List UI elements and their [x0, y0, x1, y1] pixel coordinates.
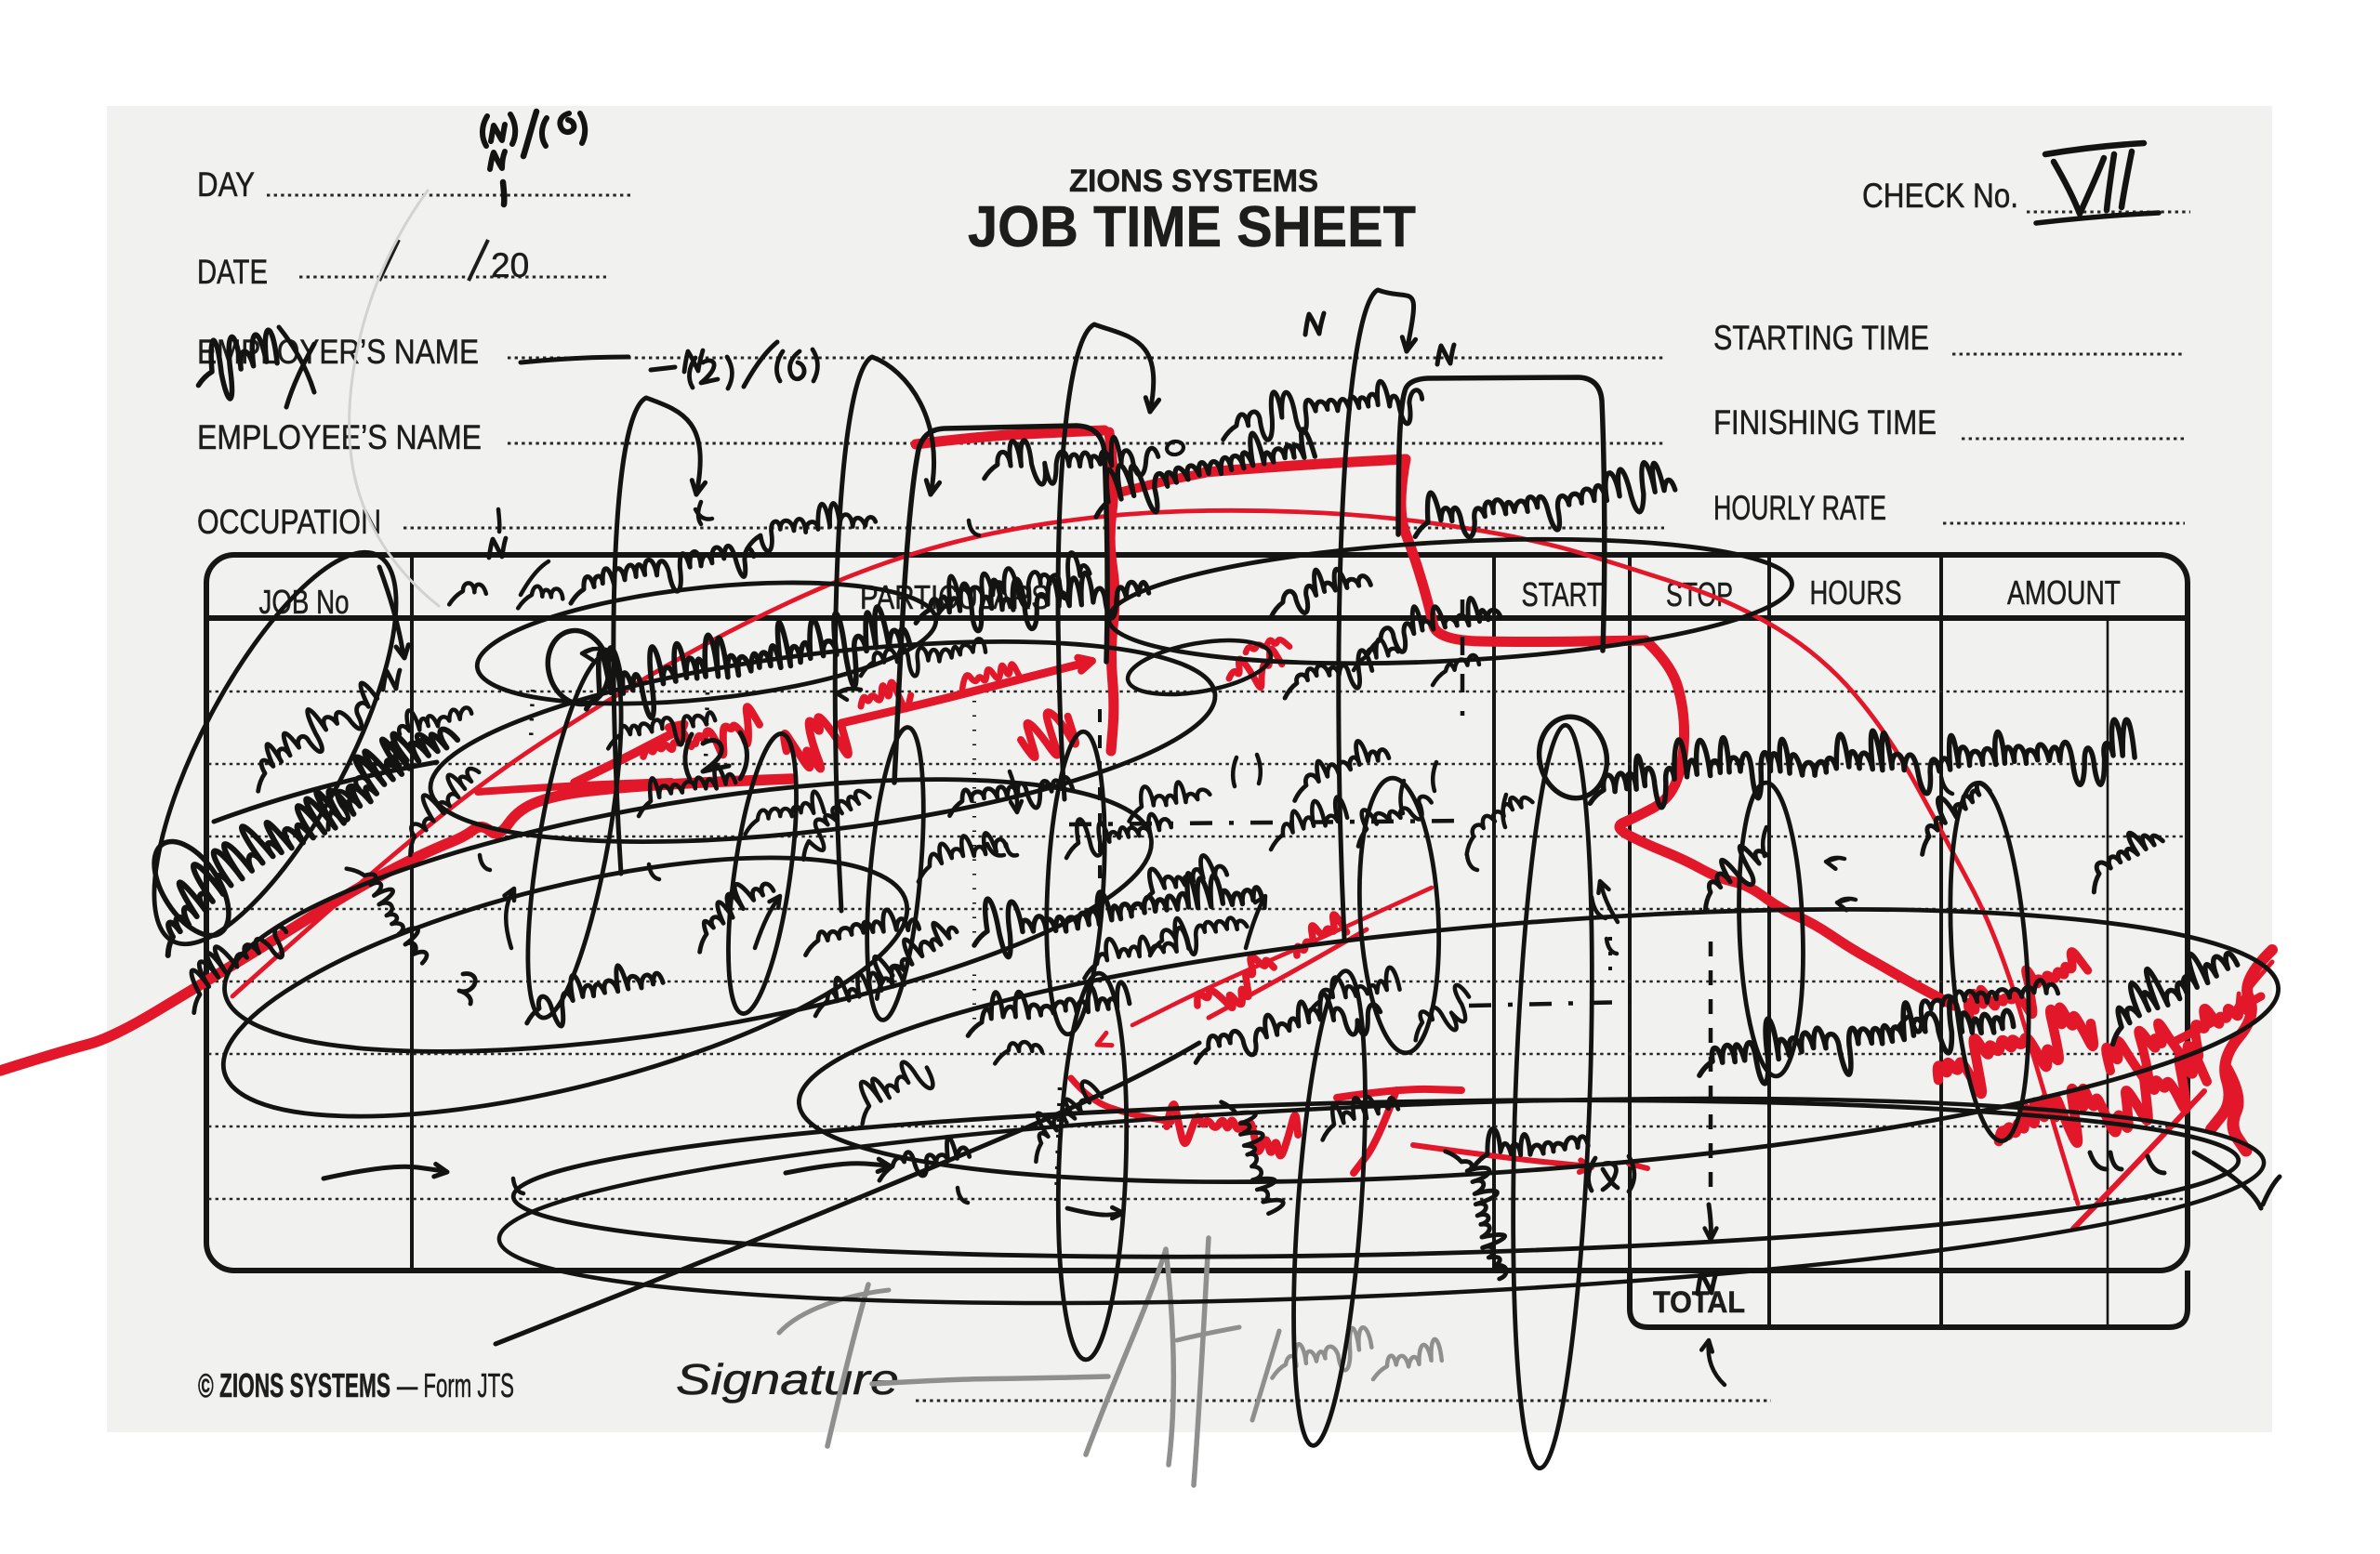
svg-text:HOURS: HOURS — [1810, 573, 1902, 612]
svg-text:20: 20 — [491, 246, 529, 284]
svg-text:DATE: DATE — [197, 253, 268, 291]
svg-text:CHECK No.: CHECK No. — [1862, 177, 2018, 215]
svg-text:AMOUNT: AMOUNT — [2007, 573, 2121, 612]
svg-text:EMPLOYEE’S NAME: EMPLOYEE’S NAME — [197, 418, 482, 456]
svg-text:JOB TIME SHEET: JOB TIME SHEET — [968, 195, 1416, 259]
svg-text:— Form JTS: — Form JTS — [397, 1366, 514, 1404]
svg-text:© ZIONS SYSTEMS: © ZIONS SYSTEMS — [198, 1366, 390, 1404]
svg-text:Signature: Signature — [676, 1355, 899, 1403]
svg-text:ZIONS SYSTEMS: ZIONS SYSTEMS — [1069, 164, 1318, 199]
svg-text:STARTING TIME: STARTING TIME — [1713, 319, 1929, 357]
svg-text:START: START — [1522, 575, 1603, 613]
svg-text:OCCUPATION: OCCUPATION — [197, 503, 381, 541]
svg-text:HOURLY RATE: HOURLY RATE — [1713, 489, 1886, 527]
svg-text:DAY: DAY — [197, 165, 255, 204]
svg-text:FINISHING TIME: FINISHING TIME — [1713, 403, 1937, 441]
